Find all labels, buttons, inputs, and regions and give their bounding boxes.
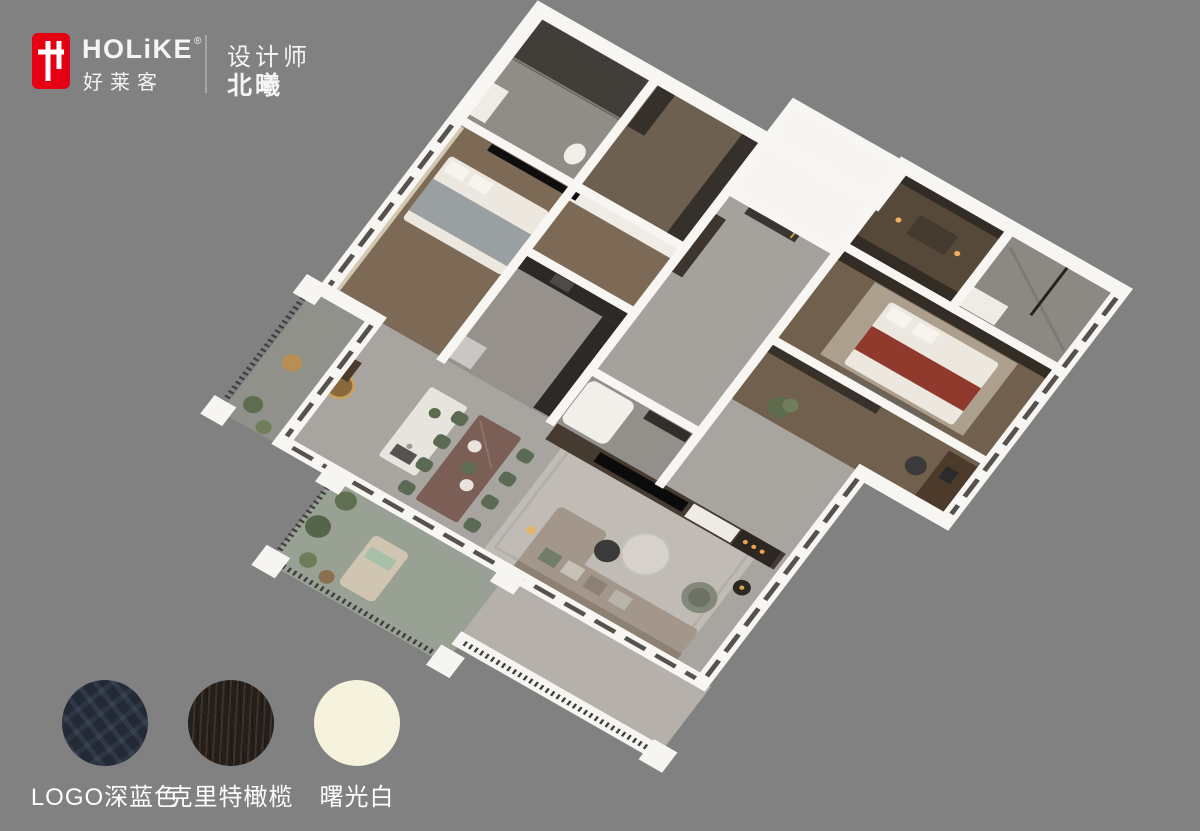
brand-header: HOLiKE® 好莱客 设计师 北曦 [32,33,392,103]
brand-name-latin: HOLiKE® [82,34,203,65]
swatch-dawn-white: 曙光白 [294,680,420,812]
registered-mark: ® [194,36,203,47]
header-divider [205,35,207,93]
swatch-crete-olive: 克里特橄榄 [168,680,294,812]
swatch-circle-olive [188,680,274,766]
swatch-label: LOGO深蓝色 [31,777,179,812]
swatch-circle-white [314,680,400,766]
swatch-logo-navy: LOGO深蓝色 [42,680,168,812]
brand-name-chinese: 好莱客 [83,66,164,95]
swatch-label: 克里特橄榄 [169,777,294,812]
material-swatches: LOGO深蓝色 克里特橄榄 曙光白 [42,680,420,812]
holike-logo-icon [32,33,70,89]
swatch-circle-navy [62,680,148,766]
designer-name: 北曦 [227,66,283,102]
poster-canvas: HOLiKE® 好莱客 设计师 北曦 LOGO深蓝色 克里特橄榄 曙光白 [0,0,1200,831]
swatch-label: 曙光白 [320,777,395,812]
